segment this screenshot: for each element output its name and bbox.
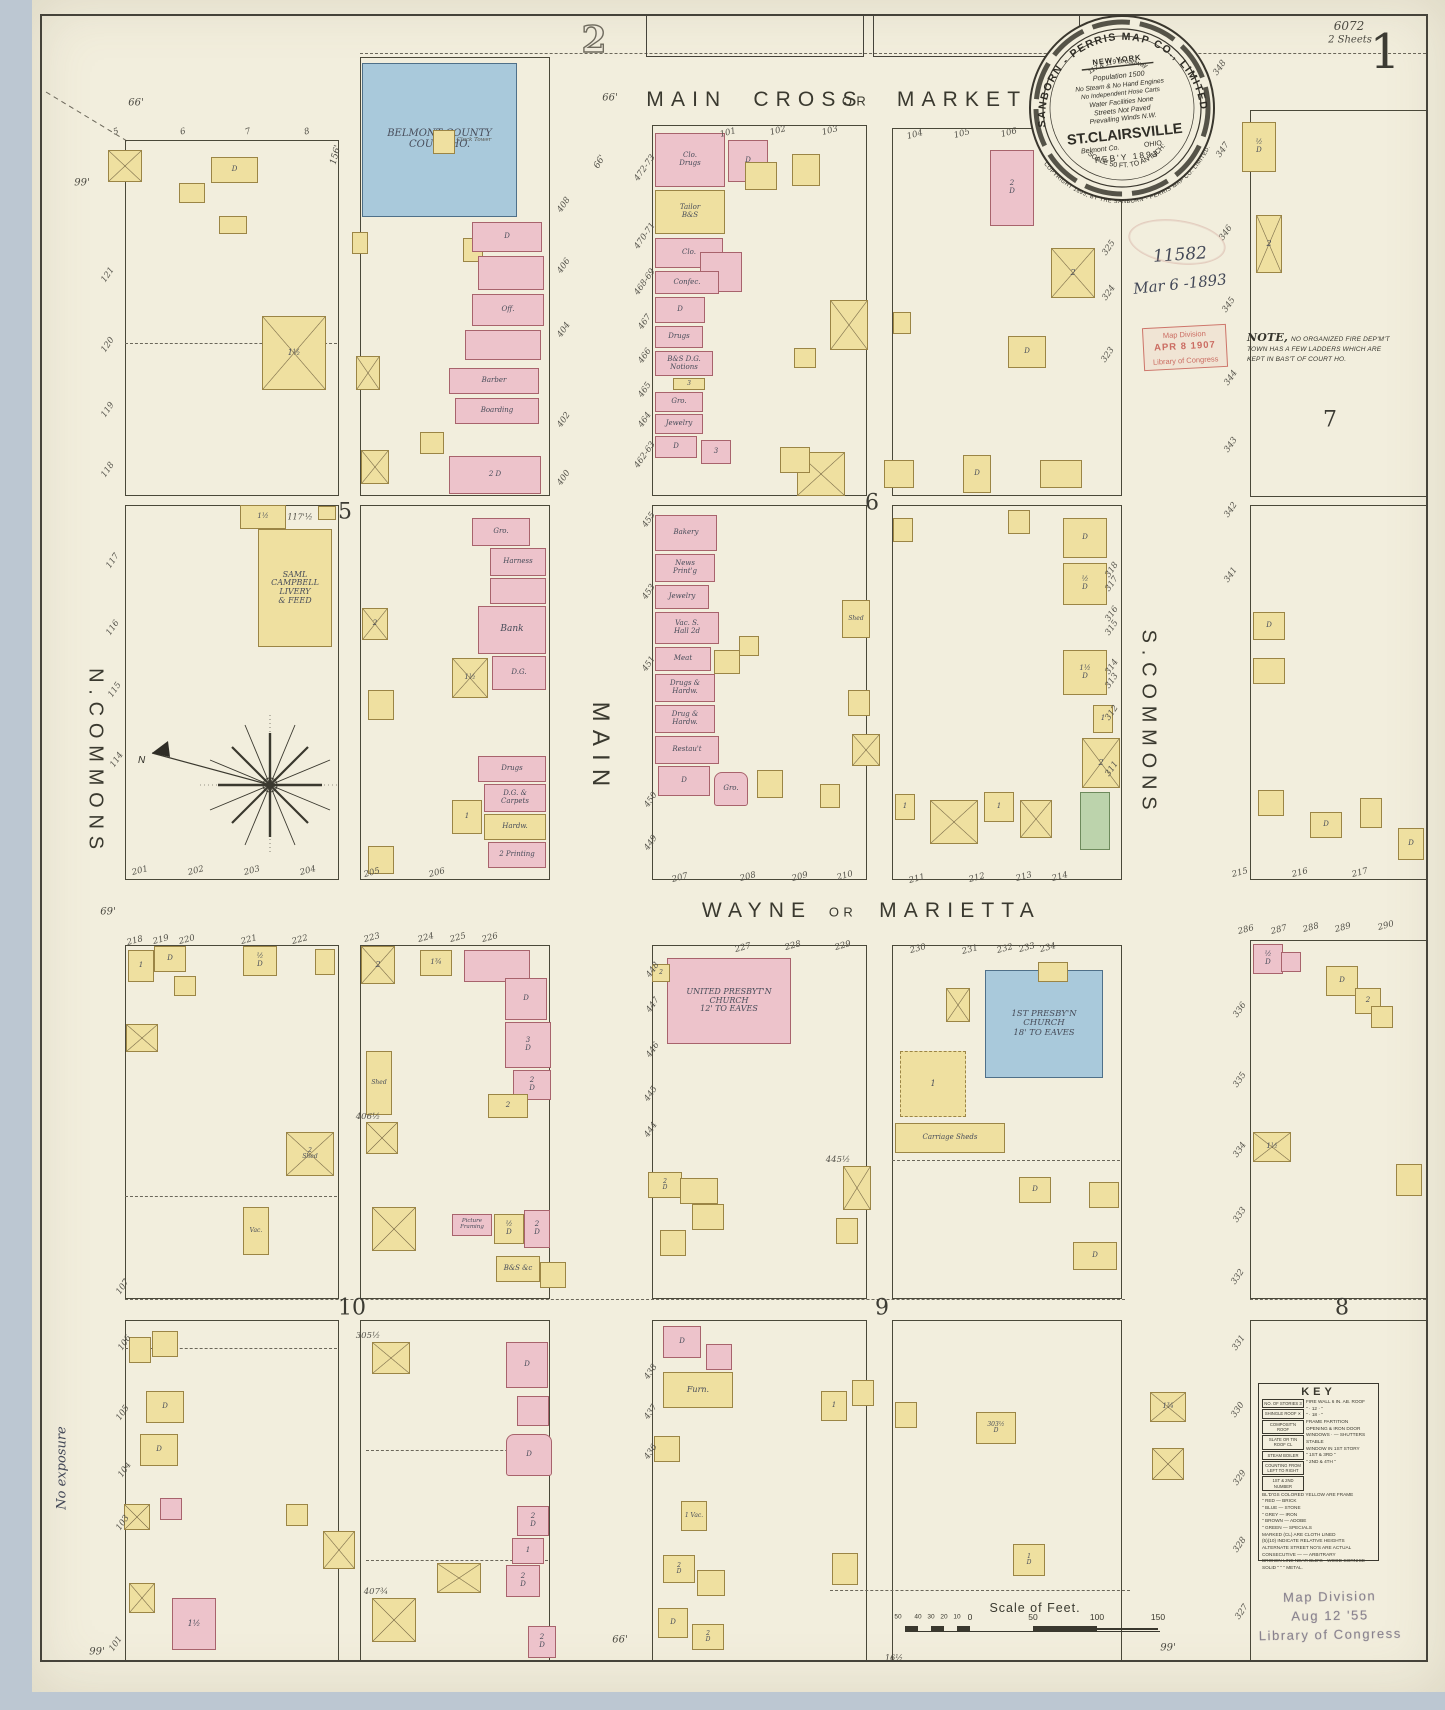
adjacent-sheet-lot xyxy=(646,15,864,57)
building xyxy=(372,1207,416,1251)
building-label: Confec. xyxy=(674,279,701,287)
building xyxy=(323,1531,355,1569)
building xyxy=(692,1204,724,1230)
building: 3 xyxy=(701,440,731,464)
building-label: 2 D xyxy=(520,1573,526,1588)
building: Harness xyxy=(490,548,546,576)
building xyxy=(174,976,196,996)
building-label: 1 xyxy=(997,803,1001,811)
note-line: kept in Bas't of Court Ho. xyxy=(1247,355,1415,365)
building-label: D xyxy=(1082,534,1088,542)
dimension-label: 99' xyxy=(89,1647,104,1658)
building-label: 1 xyxy=(465,813,469,821)
building: 2 xyxy=(488,1094,528,1118)
key-row: FRAME PARTITION xyxy=(1306,1419,1375,1426)
building-label: D.G. xyxy=(511,669,526,677)
building-label: Jewelry xyxy=(669,593,696,601)
building xyxy=(946,988,970,1022)
building xyxy=(129,1583,155,1613)
building: D xyxy=(663,1326,701,1358)
building-label: Restau't xyxy=(672,746,701,754)
building-label: UNITED PRESBYT'N CHURCH 12' TO EAVES xyxy=(686,988,771,1014)
key-row: " · 18 · " xyxy=(1306,1412,1375,1419)
street-name: OR xyxy=(842,94,870,109)
building: Furn. xyxy=(663,1372,733,1408)
building: D xyxy=(506,1342,548,1388)
building: Hardw. xyxy=(484,814,546,840)
building: 1 xyxy=(984,792,1014,822)
building: News Print'g xyxy=(655,554,715,582)
key-row: ALTERNATE STREET NO'S ARE ACTUAL xyxy=(1262,1545,1375,1552)
building: 2 D xyxy=(506,1565,540,1597)
building: B&S &c xyxy=(496,1256,540,1282)
building xyxy=(830,300,868,350)
scale-bar-tick-label: 30 xyxy=(927,1614,934,1621)
building-label: D xyxy=(523,995,529,1003)
key-row: " BLUE — STONE xyxy=(1262,1505,1375,1512)
building: D xyxy=(655,436,697,458)
building: D xyxy=(658,766,710,796)
dimension-label: 6072 xyxy=(1334,19,1365,33)
building: Boarding xyxy=(455,398,539,424)
building: 2 xyxy=(1051,248,1095,298)
building xyxy=(852,1380,874,1406)
building: 1½ xyxy=(262,316,326,390)
building: D xyxy=(146,1391,184,1423)
building: 2 xyxy=(361,946,395,984)
building: D xyxy=(506,1434,552,1476)
building-label: 2 xyxy=(1070,269,1075,278)
key-row: BL'D'GS COLORED YELLOW ARE FRAME xyxy=(1262,1492,1375,1499)
building-label: 1 D xyxy=(1027,1554,1032,1567)
building: D xyxy=(154,946,186,972)
building: Vac. S. Hall 2d xyxy=(655,612,719,644)
building-label: 1½ xyxy=(288,349,301,358)
building-label: D xyxy=(679,1338,685,1346)
building-label: 2 xyxy=(1098,759,1103,768)
building-label: Shed xyxy=(371,1080,386,1086)
building xyxy=(739,636,759,656)
building: D xyxy=(1253,612,1285,640)
lot-number: 445½ xyxy=(826,1155,850,1165)
building-label: Furn. xyxy=(687,1386,709,1395)
building-label: News Print'g xyxy=(673,560,697,575)
building: D.G. & Carpets xyxy=(484,784,546,812)
building: 2 Shed xyxy=(286,1132,334,1176)
building: ½ D xyxy=(1063,563,1107,605)
key-row: SOLID " " " METAL. xyxy=(1262,1565,1375,1572)
building-label: 3 D xyxy=(525,1037,531,1052)
building xyxy=(895,1402,917,1428)
sanborn-map-page: N D1½BELMONT COUNTY COURT HO.DOff.Barber… xyxy=(0,0,1445,1710)
building-label: Bank xyxy=(500,625,523,635)
building xyxy=(108,150,142,182)
building-label: D xyxy=(162,1403,168,1411)
building xyxy=(1008,510,1030,534)
building: 303½ D xyxy=(976,1412,1016,1444)
building-label: D xyxy=(1092,1252,1098,1260)
building-label: ½ D xyxy=(506,1221,513,1236)
block-numeral: 7 xyxy=(1323,408,1337,433)
building-label: 1 xyxy=(832,1402,836,1410)
key-row: FIRE WALL 6 IN. AB. ROOF xyxy=(1306,1399,1375,1406)
building xyxy=(1152,1448,1184,1480)
building-label: Tailor B&S xyxy=(680,204,700,219)
building: D xyxy=(655,297,705,323)
building-label: ½ D xyxy=(1256,139,1263,154)
building-label: D xyxy=(670,1619,676,1627)
street-name: OR xyxy=(829,905,857,920)
building: D xyxy=(1063,518,1107,558)
building-label: Harness xyxy=(503,558,532,566)
building: 1 xyxy=(900,1051,966,1117)
building: D xyxy=(1073,1242,1117,1270)
building-label: 2 xyxy=(1266,240,1271,249)
building-label: 2 D xyxy=(1009,180,1015,195)
building-label: Gro. xyxy=(493,528,508,536)
scale-bar-tick-label: 100 xyxy=(1090,1612,1104,1622)
building: D xyxy=(1398,828,1424,860)
note-line: No Organized Fire Dep'm't xyxy=(1291,336,1390,343)
building-label: 1½ xyxy=(257,513,268,521)
building-label: D xyxy=(1266,622,1272,630)
building-label: 2 D xyxy=(663,1179,668,1192)
building xyxy=(372,1342,410,1374)
building: 1 xyxy=(895,794,915,820)
building: 2 xyxy=(1256,215,1282,273)
building: Jewelry xyxy=(655,414,703,434)
dimension-label: 117'½ xyxy=(287,513,312,522)
building xyxy=(893,518,913,542)
building-label: Picture Framing xyxy=(460,1219,484,1231)
building-label: 2 xyxy=(375,961,380,970)
building: ½ D xyxy=(243,946,277,976)
building: SAML CAMPBELL LIVERY & FEED xyxy=(258,529,332,647)
building-label: Boarding xyxy=(481,407,514,415)
library-stamp-1907: Map Division APR 8 1907 Library of Congr… xyxy=(1142,324,1228,371)
street-name: S.COMMONS xyxy=(1137,630,1160,817)
handwritten-note: No exposure xyxy=(55,1426,70,1509)
building xyxy=(1038,962,1068,982)
building: ½ D xyxy=(1253,944,1283,974)
building: Bank xyxy=(478,606,546,654)
building: 2 D xyxy=(449,456,541,494)
building xyxy=(1360,798,1382,828)
building xyxy=(366,1122,398,1154)
building xyxy=(1253,658,1285,684)
building xyxy=(884,460,914,488)
building-label: 2 D xyxy=(539,1634,545,1649)
building-label: 2 D xyxy=(677,1563,682,1576)
building: Off. xyxy=(472,294,544,326)
dimension-label: 99' xyxy=(1160,1643,1175,1654)
building xyxy=(372,1598,416,1642)
building-label: D xyxy=(673,443,679,451)
building: 2 D xyxy=(692,1624,724,1650)
key-symbol-row: COUNTING FROM LEFT TO RIGHT xyxy=(1262,1461,1304,1476)
building: 1½ xyxy=(1253,1132,1291,1162)
building: 1 xyxy=(821,1391,847,1421)
building xyxy=(848,690,870,716)
building: Drugs xyxy=(478,756,546,782)
building: 1 xyxy=(512,1538,544,1564)
building: Restau't xyxy=(655,736,719,764)
map-border-left xyxy=(40,14,42,1662)
building-label: 1 xyxy=(139,962,143,970)
publisher-stamp: SANBORN - PERRIS MAP CO., LIMITED 117 & … xyxy=(1022,8,1222,208)
building xyxy=(368,690,394,720)
building-label: D xyxy=(1408,840,1414,848)
tiny-label: Clock Tower xyxy=(457,137,492,143)
building-label: 2 D xyxy=(706,1631,711,1644)
dimension-label: 66' xyxy=(602,93,617,104)
building xyxy=(852,734,880,766)
building xyxy=(126,1024,158,1052)
building-label: 1¾ xyxy=(1162,1403,1173,1411)
building xyxy=(706,1344,732,1370)
street-name: MARKET xyxy=(897,88,1027,112)
building xyxy=(1089,1182,1119,1208)
building-label: 2 xyxy=(659,970,663,976)
block-numeral: 1 xyxy=(1370,24,1401,80)
building-label: 1 xyxy=(526,1547,530,1555)
building-label: 2 Printing xyxy=(499,851,535,859)
building-label: Vac. xyxy=(250,1228,263,1234)
building-label: Shed xyxy=(848,616,863,622)
key-symbol-row: COMPOSIT'N ROOF xyxy=(1262,1420,1304,1435)
lot-dash-line xyxy=(892,1160,1120,1161)
building: 1¾ xyxy=(1150,1392,1186,1422)
building xyxy=(1396,1164,1422,1196)
building: 1½ xyxy=(452,658,488,698)
key-row: " · 12 · " xyxy=(1306,1406,1375,1413)
building: D xyxy=(211,157,258,183)
building xyxy=(318,506,336,520)
building xyxy=(745,162,777,190)
building: 2 D xyxy=(648,1172,682,1198)
building: 2 xyxy=(362,608,388,640)
building-label: D xyxy=(1339,977,1345,985)
key-row: " GREEN — SPECIALS xyxy=(1262,1525,1375,1532)
building xyxy=(361,450,389,484)
building-label: 1 xyxy=(903,803,907,811)
building-label: B&S &c xyxy=(504,1265,533,1273)
building: D xyxy=(1008,336,1046,368)
building xyxy=(465,330,541,360)
building-label: Gro. xyxy=(723,785,738,793)
building: 2 D xyxy=(663,1555,695,1583)
building xyxy=(1040,460,1082,488)
building-label: 1¾ xyxy=(430,959,441,967)
building-label: 3 xyxy=(687,381,691,387)
building: 2 D xyxy=(517,1506,549,1536)
map-border-right xyxy=(1426,14,1428,1662)
lot-dash-line xyxy=(830,1590,1130,1591)
building: ½ D xyxy=(494,1214,524,1244)
building xyxy=(660,1230,686,1256)
building xyxy=(490,578,546,604)
block-numeral: 5 xyxy=(338,500,352,525)
building xyxy=(437,1563,481,1593)
scale-bar-tick-label: 50 xyxy=(894,1614,901,1621)
street-name: MAIN xyxy=(586,702,614,795)
street-name: N.COMMONS xyxy=(84,668,107,856)
building-label: D xyxy=(232,166,238,174)
building: Shed xyxy=(842,600,870,638)
block-numeral: 9 xyxy=(875,1296,889,1321)
building-label: 2 D xyxy=(529,1077,535,1092)
key-row: BROKEN LINE NEAR BLD'G · WOOD CORNICE xyxy=(1262,1558,1375,1565)
key-symbol-row: SLATE OR TIN ROOF CL xyxy=(1262,1435,1304,1450)
building: Drugs & Hardw. xyxy=(655,674,715,702)
building xyxy=(714,650,740,674)
building: D xyxy=(1310,812,1342,838)
map-border-bottom xyxy=(40,1660,1428,1662)
building: D xyxy=(472,222,542,252)
scale-bar-tick-label: 20 xyxy=(940,1614,947,1621)
building xyxy=(780,447,810,473)
building-label: Off. xyxy=(502,306,515,314)
scale-bar-segment xyxy=(1097,1628,1158,1630)
building xyxy=(820,784,840,808)
building-label: 1ST PRESBY'N CHURCH 18' TO EAVES xyxy=(1011,1010,1076,1038)
building-label: Hardw. xyxy=(502,823,528,831)
building-label: 1½ xyxy=(188,1620,201,1629)
building xyxy=(680,1178,718,1204)
building-label: Carriage Sheds xyxy=(922,1134,977,1142)
dimension-label: 99' xyxy=(74,178,89,189)
building: D.G. xyxy=(492,656,546,690)
key-symbol-row: STEAM BOILER xyxy=(1262,1451,1304,1460)
building xyxy=(179,183,205,203)
building xyxy=(286,1504,308,1526)
dimension-label: 66' xyxy=(612,1635,627,1646)
building: Jewelry xyxy=(655,585,709,609)
street-name: WAYNE xyxy=(702,899,812,923)
key-symbol-row: NO. OF STORIES 3 xyxy=(1262,1399,1304,1408)
building: 1½ xyxy=(240,505,286,529)
building xyxy=(1371,1006,1393,1028)
building-label: D xyxy=(1024,348,1030,356)
building xyxy=(843,1166,871,1210)
building xyxy=(517,1396,549,1426)
scale-bar-tick-label: 10 xyxy=(953,1614,960,1621)
building: Gro. xyxy=(714,772,748,806)
building-label: 1 xyxy=(930,1080,935,1089)
building: Gro. xyxy=(472,518,530,546)
building-label: D xyxy=(526,1451,532,1459)
building: 1 xyxy=(452,800,482,834)
building-label: 2 D xyxy=(534,1221,540,1236)
building-label: 2 xyxy=(1366,997,1370,1005)
building-label: Meat xyxy=(674,655,692,663)
building: D xyxy=(658,1608,688,1638)
building-label: 2 Shed xyxy=(302,1148,317,1161)
building-label: D xyxy=(1323,821,1329,829)
building-label: 1½ xyxy=(464,674,475,682)
building: D xyxy=(505,978,547,1020)
key-row: OPENING & IRON DOOR xyxy=(1306,1426,1375,1433)
building: Tailor B&S xyxy=(655,190,725,234)
building-label: Vac. S. Hall 2d xyxy=(674,620,700,635)
city-block xyxy=(125,945,339,1299)
building: B&S D.G. Notions xyxy=(655,351,713,376)
building xyxy=(930,800,978,844)
key-row: STABLE xyxy=(1306,1439,1375,1446)
building xyxy=(160,1498,182,1520)
building: Picture Framing xyxy=(452,1214,492,1236)
building: 1½ D xyxy=(1063,650,1107,695)
building-label: D xyxy=(974,470,980,478)
building: ½ D xyxy=(1242,122,1276,172)
building xyxy=(757,770,783,798)
building-label: Drug & Hardw. xyxy=(672,711,698,726)
building-label: 1½ D xyxy=(1079,665,1090,680)
building xyxy=(219,216,247,234)
key-row: WINDOW IN 1ST STORY xyxy=(1306,1446,1375,1453)
key-row: " BROWN — ADOBE xyxy=(1262,1518,1375,1525)
building: 3 xyxy=(673,378,705,390)
building xyxy=(1080,792,1110,850)
dimension-label: 2 Sheets xyxy=(1328,35,1372,46)
building-label: Barber xyxy=(482,377,507,385)
building: Carriage Sheds xyxy=(895,1123,1005,1153)
building xyxy=(1281,952,1301,972)
block-numeral: 6 xyxy=(865,491,879,516)
building xyxy=(893,312,911,334)
building xyxy=(540,1262,566,1288)
building-label: 2 xyxy=(506,1102,510,1110)
building xyxy=(794,348,816,368)
lot-number: 305½ xyxy=(356,1331,380,1341)
note-title: NOTE, xyxy=(1247,331,1288,344)
building-label: 1½ xyxy=(1266,1143,1277,1151)
building: 1 Vac. xyxy=(681,1501,707,1531)
building-label: 2 D xyxy=(489,471,501,479)
building-label: 2 xyxy=(373,620,377,628)
building xyxy=(433,130,455,154)
lot-dash-line xyxy=(125,1299,1125,1300)
building-label: D xyxy=(681,777,687,785)
scale-bar-tick-label: 40 xyxy=(914,1614,921,1621)
city-block xyxy=(125,1320,339,1662)
building: 2 D xyxy=(524,1210,550,1248)
building-label: 3 xyxy=(714,448,718,456)
key-row: " 1ST & 3RD " xyxy=(1306,1452,1375,1459)
building: Confec. xyxy=(655,271,719,294)
building xyxy=(697,1570,725,1596)
key-row: " RED — BRICK xyxy=(1262,1498,1375,1505)
fire-department-note: NOTE,No Organized Fire Dep'm't Town has … xyxy=(1247,331,1415,364)
building-label: Gro. xyxy=(671,398,686,406)
key-row: " 2ND & 4TH " xyxy=(1306,1459,1375,1466)
building-label: 1 Vac. xyxy=(685,1513,703,1519)
stamp-line: Library of Congress xyxy=(1255,1624,1405,1645)
building: 1 xyxy=(128,950,154,982)
library-stamp-1955: Map Division Aug 12 '55 Library of Congr… xyxy=(1255,1587,1406,1646)
building-label: Clo. xyxy=(682,249,696,257)
building-label: D xyxy=(504,233,510,241)
building: D xyxy=(1019,1177,1051,1203)
building-label: 303½ D xyxy=(987,1422,1004,1435)
key-row: MARKED (CL) ARE CLOTH LINED xyxy=(1262,1532,1375,1539)
building: 2 D xyxy=(528,1626,556,1658)
building-label: D xyxy=(167,955,173,963)
scale-bar-tick-label: 0 xyxy=(968,1612,973,1622)
lot-number: 406½ xyxy=(356,1112,380,1122)
building-label: D.G. & Carpets xyxy=(501,790,529,805)
building: D xyxy=(963,455,991,493)
